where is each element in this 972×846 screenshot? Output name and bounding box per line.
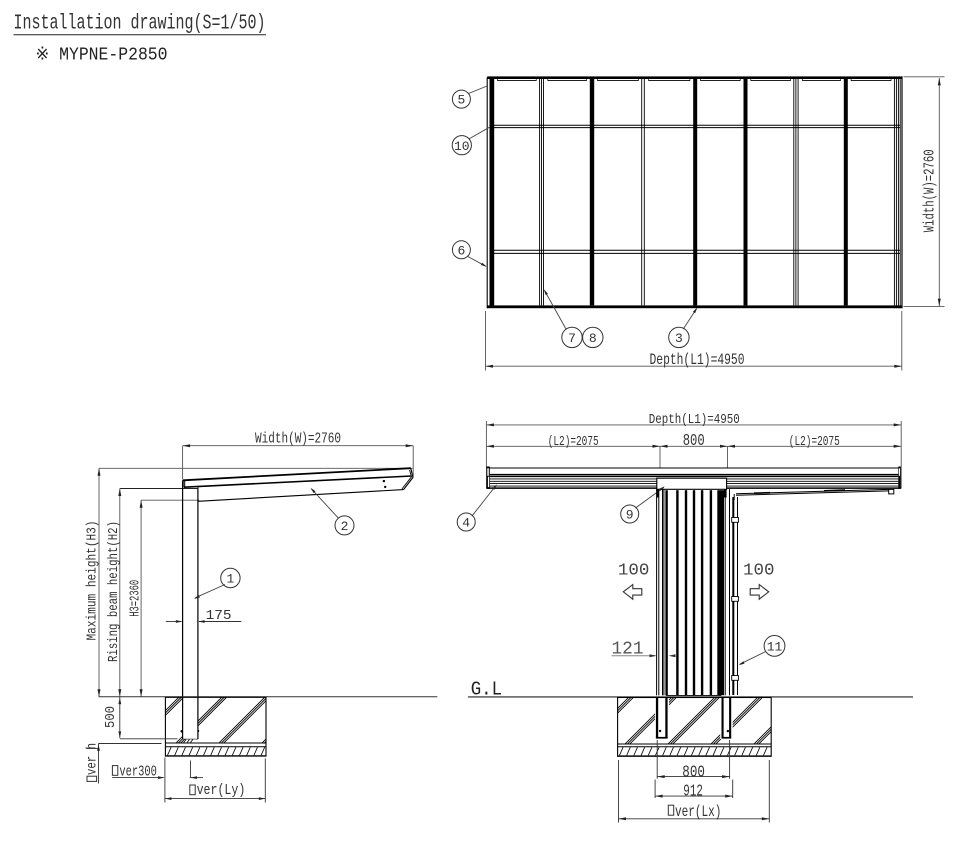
svg-text:ver h: ver h [84, 743, 100, 775]
svg-text:Rising beam height(H2): Rising beam height(H2) [106, 521, 122, 662]
svg-text:H3=2360: H3=2360 [127, 580, 143, 617]
svg-text:ver(Lx): ver(Lx) [675, 803, 721, 821]
svg-text:11: 11 [767, 640, 783, 655]
svg-text:3: 3 [675, 331, 683, 346]
svg-text:Installation drawing(S=1/50): Installation drawing(S=1/50) [14, 13, 266, 36]
svg-text:2: 2 [341, 519, 349, 534]
svg-text:500: 500 [103, 706, 119, 728]
svg-text:7: 7 [568, 331, 576, 346]
svg-text:9: 9 [626, 508, 634, 523]
svg-text:1: 1 [226, 572, 234, 587]
svg-text:175: 175 [206, 608, 232, 624]
svg-text:Depth(L1)=4950: Depth(L1)=4950 [649, 413, 740, 428]
svg-text:800: 800 [682, 763, 705, 782]
svg-text:Maximum height(H3): Maximum height(H3) [85, 521, 101, 641]
svg-text:6: 6 [457, 243, 465, 258]
svg-text:10: 10 [454, 139, 470, 154]
svg-text:912: 912 [683, 783, 703, 802]
svg-text:8: 8 [589, 331, 597, 346]
svg-text:800: 800 [683, 432, 705, 451]
svg-text:※ MYPNE-P2850: ※ MYPNE-P2850 [36, 46, 168, 66]
svg-text:(L2)=2075: (L2)=2075 [548, 435, 599, 450]
svg-text:(L2)=2075: (L2)=2075 [789, 435, 840, 450]
svg-text:Width(W)=2760: Width(W)=2760 [922, 149, 939, 232]
svg-text:100: 100 [618, 561, 650, 580]
svg-text:5: 5 [457, 93, 465, 108]
svg-text:100: 100 [743, 561, 775, 580]
svg-text:ver(Ly): ver(Ly) [197, 782, 246, 799]
svg-text:4: 4 [462, 516, 470, 531]
svg-text:Depth(L1)=4950: Depth(L1)=4950 [650, 351, 745, 369]
svg-text:Width(W)=2760: Width(W)=2760 [255, 430, 341, 447]
